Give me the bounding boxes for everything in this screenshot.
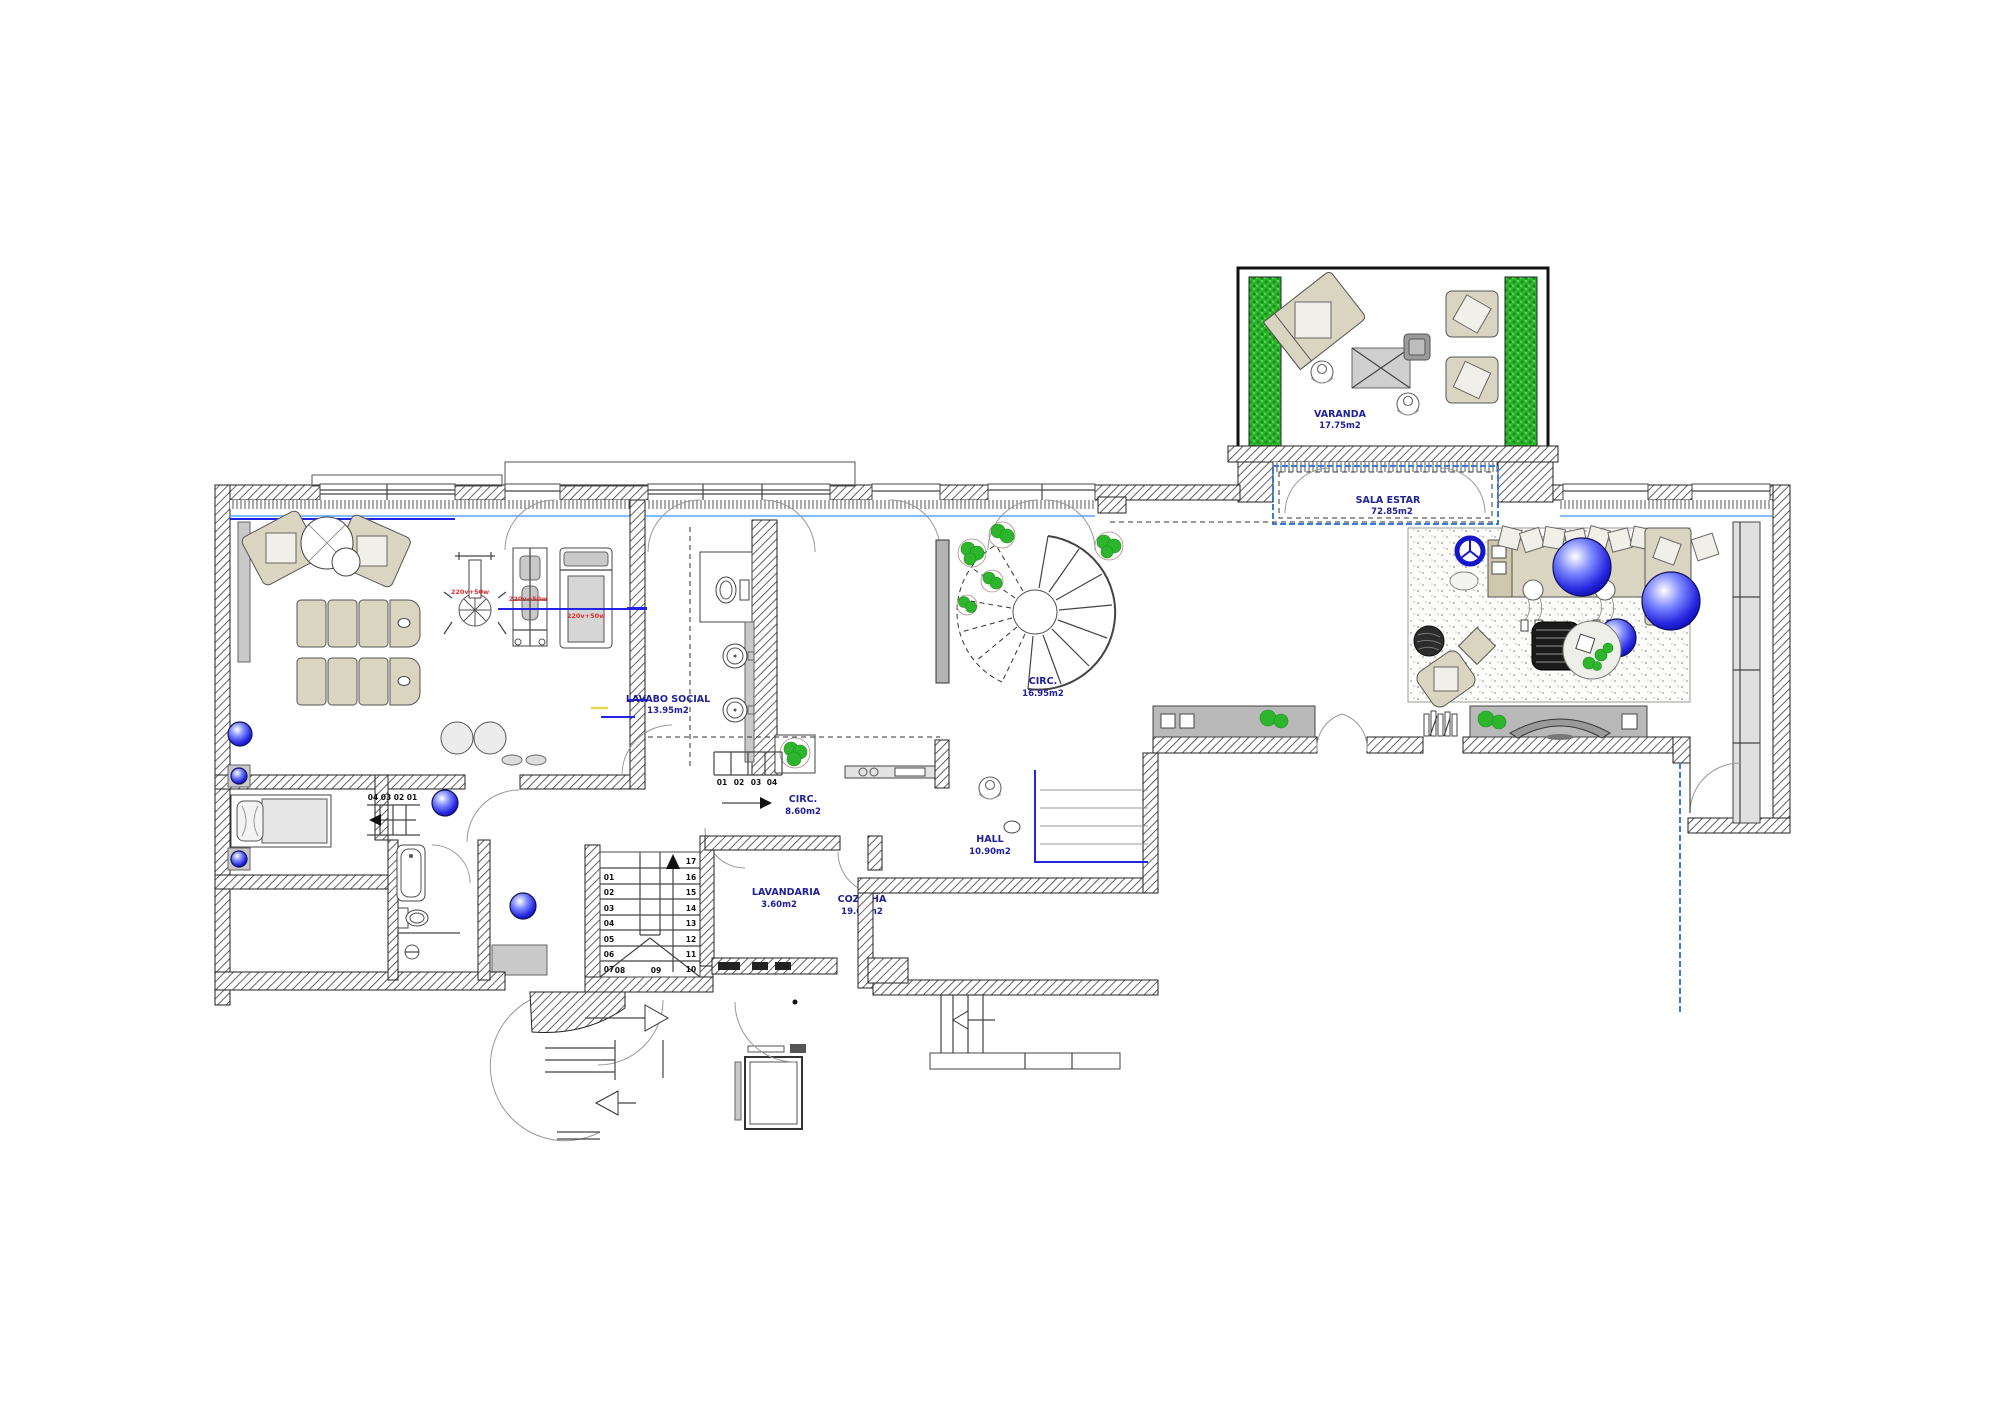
hedge-planter-right: [1505, 277, 1537, 447]
floor-plan-canvas: VARANDA 17.75m2 SALA ESTAR 72.85m2: [0, 0, 2000, 1414]
svg-text:04: 04: [604, 919, 614, 928]
svg-text:04: 04: [368, 793, 378, 802]
room-label-lavandaria: LAVANDARIA: [752, 887, 821, 898]
room-label-varanda: VARANDA: [1314, 409, 1367, 420]
door-arc: [735, 1002, 795, 1062]
svg-text:01: 01: [717, 778, 727, 787]
svg-text:01: 01: [407, 793, 417, 802]
hedge-planter-left: [1249, 277, 1281, 447]
equipment-label: 220v+50w: [567, 612, 605, 620]
direction-arrow: [953, 1011, 968, 1029]
room-label-circ-spiral: CIRC.: [1029, 676, 1057, 687]
window: [320, 484, 455, 501]
gym-room: 220v+50w 220v+50w 220v+50w: [215, 500, 647, 842]
nightstand: [228, 765, 250, 787]
plant: [989, 522, 1015, 548]
equipment-label: 220v+50w: [509, 595, 547, 603]
svg-text:13: 13: [686, 919, 696, 928]
bedroom: 04 03 02 01: [215, 765, 505, 990]
svg-text:15: 15: [686, 888, 696, 897]
tv-console: [1470, 706, 1647, 740]
round-table: [1563, 621, 1621, 679]
blue-sphere-large: [1642, 572, 1700, 630]
oval-tray: [1450, 572, 1478, 590]
svg-text:17: 17: [686, 857, 696, 866]
veranda: VARANDA 17.75m2: [1228, 268, 1558, 472]
bookshelf: [1424, 711, 1457, 736]
svg-text:02: 02: [734, 778, 744, 787]
living-room: [1408, 522, 1760, 823]
room-area-circ-spiral: 16.95m2: [1022, 689, 1064, 699]
bathtub: [397, 845, 425, 901]
svg-text:04: 04: [767, 778, 777, 787]
svg-text:09: 09: [651, 966, 661, 975]
svg-text:08: 08: [615, 966, 625, 975]
shower: [398, 933, 460, 959]
room-label-hall: HALL: [976, 834, 1003, 845]
blue-sphere-large: [1553, 538, 1611, 596]
direction-arrow: [760, 797, 772, 809]
equipment-label: 220v+50w: [451, 588, 489, 596]
double-door: [1317, 714, 1367, 751]
exercise-ball: [441, 722, 473, 754]
room-area-lavabo: 13.95m2: [647, 706, 689, 716]
svg-text:12: 12: [686, 935, 696, 944]
svg-text:03: 03: [751, 778, 761, 787]
svg-text:10: 10: [686, 965, 696, 974]
room-area-circ-corridor: 8.60m2: [785, 807, 821, 817]
window: [1692, 484, 1770, 501]
wheel-decor: [1457, 538, 1483, 564]
door-arc: [1285, 468, 1330, 513]
window: [872, 484, 940, 501]
tv-console-wall: [1153, 706, 1740, 1015]
svg-text:14: 14: [686, 904, 696, 913]
direction-arrow: [645, 1005, 668, 1031]
bowl: [526, 755, 546, 765]
armchair: [1446, 357, 1498, 403]
svg-text:11: 11: [686, 950, 696, 959]
exercise-ball: [474, 722, 506, 754]
hall: HALL 10.90m2: [858, 753, 1158, 1069]
direction-arrow: [596, 1091, 618, 1115]
room-label-sala-estar: SALA ESTAR: [1356, 495, 1421, 506]
svg-text:02: 02: [394, 793, 404, 802]
room-area-hall: 10.90m2: [969, 847, 1011, 857]
massage-bed: [297, 600, 420, 647]
massage-bed: [297, 658, 420, 705]
plant: [957, 595, 977, 615]
plant: [1095, 532, 1123, 560]
svg-text:03: 03: [381, 793, 391, 802]
main-staircase: 01 02 03 04 05 06 07 08 09 17 16 15 14 1…: [585, 845, 713, 992]
room-label-circ-corridor: CIRC.: [789, 794, 817, 805]
plant: [981, 570, 1003, 592]
toilet: [398, 908, 428, 928]
nightstand: [228, 848, 250, 870]
toilet: [716, 577, 749, 603]
room-area-sala-estar: 72.85m2: [1371, 507, 1413, 517]
window: [1563, 484, 1648, 501]
kitchen-counter: [845, 766, 940, 778]
plant: [958, 539, 986, 567]
person-figure: [1311, 361, 1333, 383]
door-arc: [432, 845, 470, 883]
room-label-lavabo: LAVABO SOCIAL: [626, 694, 710, 705]
svg-text:03: 03: [604, 904, 614, 913]
floor-plan-drawing: VARANDA 17.75m2 SALA ESTAR 72.85m2: [0, 0, 2000, 1414]
person-figure: [979, 777, 1001, 799]
blue-sphere: [432, 790, 458, 816]
svg-text:01: 01: [604, 873, 614, 882]
door-arc: [1440, 468, 1485, 513]
blue-sphere: [510, 893, 536, 919]
window: [648, 484, 830, 501]
room-area-lavandaria: 3.60m2: [761, 900, 797, 910]
blue-sphere-lamp: [231, 851, 247, 867]
right-wall-cabinet: [1733, 522, 1760, 823]
sideboard: [1153, 706, 1315, 737]
bed: [231, 795, 331, 847]
svg-text:07: 07: [604, 965, 614, 974]
blue-sphere-lamp: [231, 768, 247, 784]
svg-text:02: 02: [604, 888, 614, 897]
veranda-sill-wall: [1228, 446, 1558, 462]
svg-text:05: 05: [604, 935, 614, 944]
treadmill: [560, 548, 612, 648]
blue-sphere: [228, 722, 252, 746]
svg-text:06: 06: [604, 950, 614, 959]
terrace-door: [1680, 763, 1740, 1015]
person-figure: [1397, 393, 1419, 415]
bowl: [502, 755, 522, 765]
terrace-steps: [930, 995, 1120, 1069]
room-area-varanda: 17.75m2: [1319, 421, 1361, 431]
svg-text:16: 16: [686, 873, 696, 882]
armchair: [1446, 291, 1498, 337]
bathroom: [388, 840, 490, 980]
door-arc: [467, 790, 519, 842]
window: [505, 484, 560, 501]
window: [988, 484, 1095, 501]
